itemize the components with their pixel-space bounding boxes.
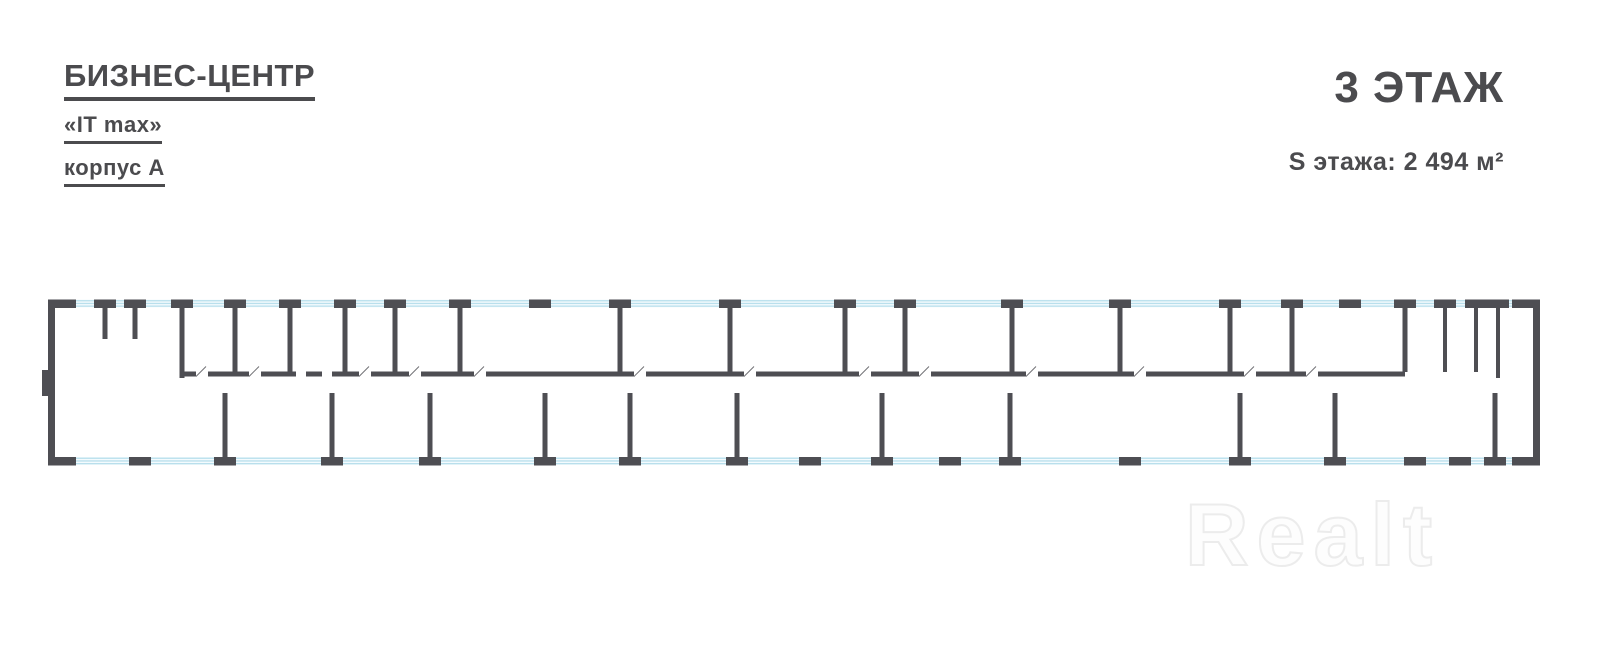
realt-watermark: Realt — [1185, 484, 1440, 586]
walls — [42, 300, 1540, 466]
windows — [48, 300, 1540, 466]
